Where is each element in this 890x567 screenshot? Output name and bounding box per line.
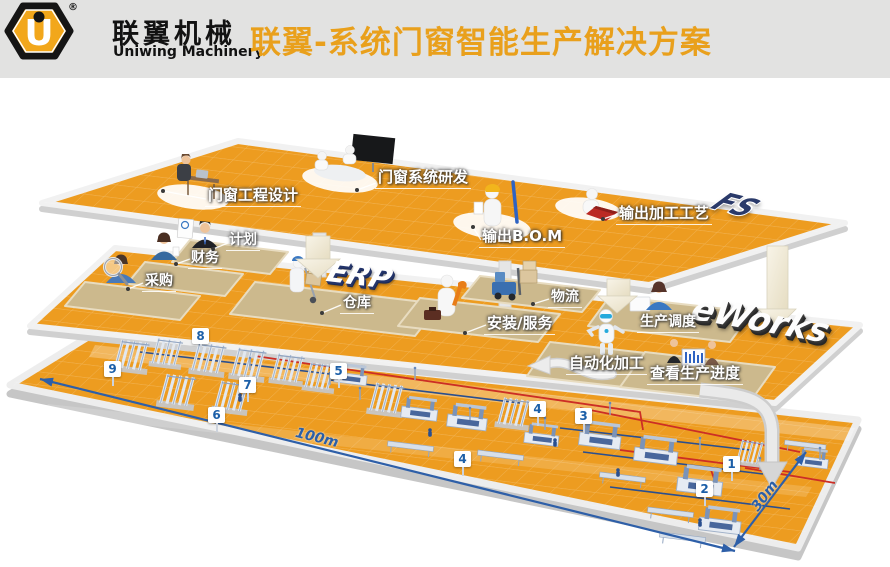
station-label-scheduling: 生产调度 [637,315,699,333]
station-label-install-service: 安装/服务 [484,315,555,335]
station-label-warehouse: 仓库 [340,296,374,314]
floor-marker-3: 3 [575,408,592,424]
station-label-window-design: 门窗工程设计 [205,187,301,207]
station-label-finance: 财务 [188,251,222,269]
floor-marker-9: 9 [104,361,121,377]
floor-marker-2: 2 [696,481,713,497]
scene-illustration [0,0,890,567]
floor-marker-1: 1 [723,456,740,472]
station-label-output-process: 输出加工工艺 [616,205,712,225]
registered-mark: ® [68,2,78,13]
station-label-logistics: 物流 [548,290,582,308]
brand-name-en: Uniwing Machinery [113,44,264,60]
figure-finance [151,233,179,261]
floor-marker-4b: 4 [454,451,471,467]
station-label-output-bom: 输出B.O.M [479,228,565,248]
company-logo: U ® [0,0,80,64]
header-bar: U ® 联翼机械 Uniwing Machinery 联翼-系统门窗智能生产解决… [0,0,890,78]
solution-infographic: U ® 联翼机械 Uniwing Machinery 联翼-系统门窗智能生产解决… [0,0,890,567]
station-label-progress: 查看生产进度 [647,365,743,385]
floor-marker-5: 5 [330,363,347,379]
floor-marker-8: 8 [192,328,209,344]
floor-marker-7: 7 [239,377,256,393]
floor-marker-4a: 4 [529,401,546,417]
station-label-automation: 自动化加工 [566,355,647,375]
station-label-planning: 计划 [226,233,260,251]
station-label-procurement: 采购 [142,274,176,292]
page-title: 联翼-系统门窗智能生产解决方案 [250,17,712,62]
floor-marker-6: 6 [208,407,225,423]
station-label-system-rd: 门窗系统研发 [375,169,471,189]
